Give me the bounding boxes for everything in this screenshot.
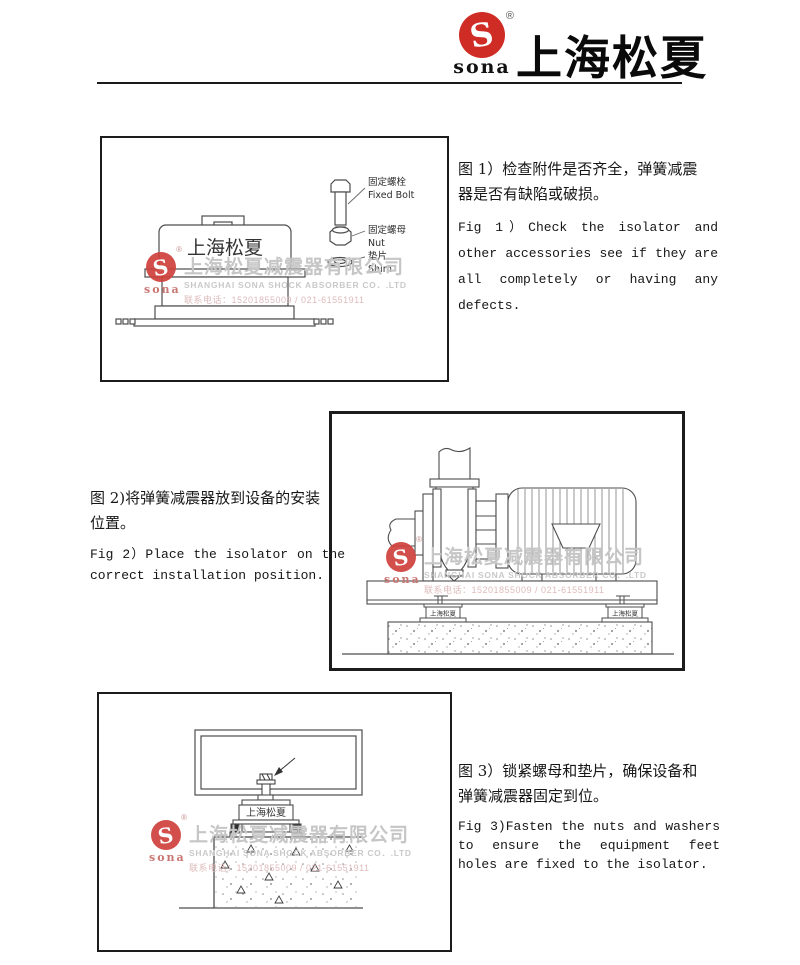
figure-1-caption-zh: 图 1）检查附件是否齐全，弹簧减震 器是否有缺陷或破损。 — [458, 157, 718, 207]
caption-line: defects. — [458, 293, 718, 319]
foundation — [179, 837, 363, 908]
nut-drawing — [330, 227, 351, 245]
brand-name: 上海松夏 — [516, 22, 708, 88]
page: S ® sona 上海松夏 — [0, 0, 800, 965]
figure-3-caption-en: Fig 3)Fasten the nuts and washers to ens… — [458, 817, 720, 874]
fastening-drawing: 上海松夏 — [99, 694, 446, 946]
caption-line: to ensure the equipment feet — [458, 836, 720, 855]
pump-installation-drawing: 上海松夏 上海松夏 — [332, 414, 676, 662]
caption-line: 弹簧减震器固定到位。 — [458, 784, 720, 809]
header-divider — [97, 82, 682, 84]
caption-line: 图 3）锁紧螺母和垫片，确保设备和 — [458, 759, 720, 784]
caption-line: Fig 2）Place the isolator on the — [90, 544, 345, 565]
isolator-brand-label: 上海松夏 — [612, 609, 639, 618]
figure-3-caption-zh: 图 3）锁紧螺母和垫片，确保设备和 弹簧减震器固定到位。 — [458, 759, 720, 809]
base-frame — [367, 581, 657, 604]
isolator-outline — [116, 216, 333, 326]
fixed-bolt-drawing — [331, 180, 350, 225]
caption-line: other accessories see if they are — [458, 241, 718, 267]
leader-lines — [348, 188, 365, 260]
isolator-brand-label: 上海松夏 — [246, 806, 286, 819]
shim-label-en: Shim — [368, 264, 392, 275]
sona-s-glyph: S — [468, 17, 496, 53]
equipment-beam — [195, 730, 362, 795]
part-labels: 固定螺栓 Fixed Bolt 固定螺母 Nut 垫片 Shim — [368, 176, 415, 275]
caption-line: Fig 3)Fasten the nuts and washers — [458, 817, 720, 836]
figure-2-caption: 图 2)将弹簧减震器放到设备的安装 位置。 Fig 2）Place the is… — [90, 486, 345, 586]
foundation — [342, 622, 674, 654]
figure-2-box: 上海松夏 上海松夏 S ® sona 上海松夏减震器有限公司 SHANGHAI … — [329, 411, 685, 671]
figure-2-caption-en: Fig 2）Place the isolator on the correct … — [90, 544, 345, 586]
caption-line: 器是否有缺陷或破损。 — [458, 182, 718, 207]
isolator-brand-label: 上海松夏 — [187, 237, 263, 259]
figure-3-box: 上海松夏 S ® sona — [97, 692, 452, 952]
figure-1-box: 固定螺栓 Fixed Bolt 固定螺母 Nut 垫片 Shim 上海松夏 S … — [100, 136, 449, 382]
caption-line: 图 2)将弹簧减震器放到设备的安装 — [90, 486, 345, 511]
isolator-brand-label: 上海松夏 — [430, 609, 457, 618]
fixed-bolt-label-en: Fixed Bolt — [368, 190, 415, 201]
figure-1-caption-en: Fig 1）Check the isolator and other acces… — [458, 215, 718, 319]
sona-logo-text: sona — [452, 56, 512, 78]
registered-trademark-icon: ® — [506, 10, 514, 22]
pump-and-motor — [388, 448, 636, 581]
caption-line: all completely or having any — [458, 267, 718, 293]
shim-label-zh: 垫片 — [368, 250, 387, 262]
caption-line: correct installation position. — [90, 565, 345, 586]
figure-2-caption-zh: 图 2)将弹簧减震器放到设备的安装 位置。 — [90, 486, 345, 536]
figure-1-caption: 图 1）检查附件是否齐全，弹簧减震 器是否有缺陷或破损。 Fig 1）Check… — [458, 157, 718, 319]
isolator-accessories-drawing: 固定螺栓 Fixed Bolt 固定螺母 Nut 垫片 Shim 上海松夏 — [102, 138, 443, 376]
figure-3-caption: 图 3）锁紧螺母和垫片，确保设备和 弹簧减震器固定到位。 Fig 3)Faste… — [458, 759, 720, 874]
sona-logo-circle: S — [459, 12, 505, 58]
caption-line: holes are fixed to the isolator. — [458, 855, 720, 874]
fixed-bolt-label-zh: 固定螺栓 — [368, 176, 407, 188]
caption-line: Fig 1）Check the isolator and — [458, 215, 718, 241]
sona-logo-icon: S ® sona — [452, 12, 512, 78]
caption-line: 位置。 — [90, 511, 345, 536]
nut-label-zh: 固定螺母 — [368, 224, 406, 236]
shim-drawing — [328, 258, 352, 267]
caption-line: 图 1）检查附件是否齐全，弹簧减震 — [458, 157, 718, 182]
nut-label-en: Nut — [368, 238, 385, 249]
